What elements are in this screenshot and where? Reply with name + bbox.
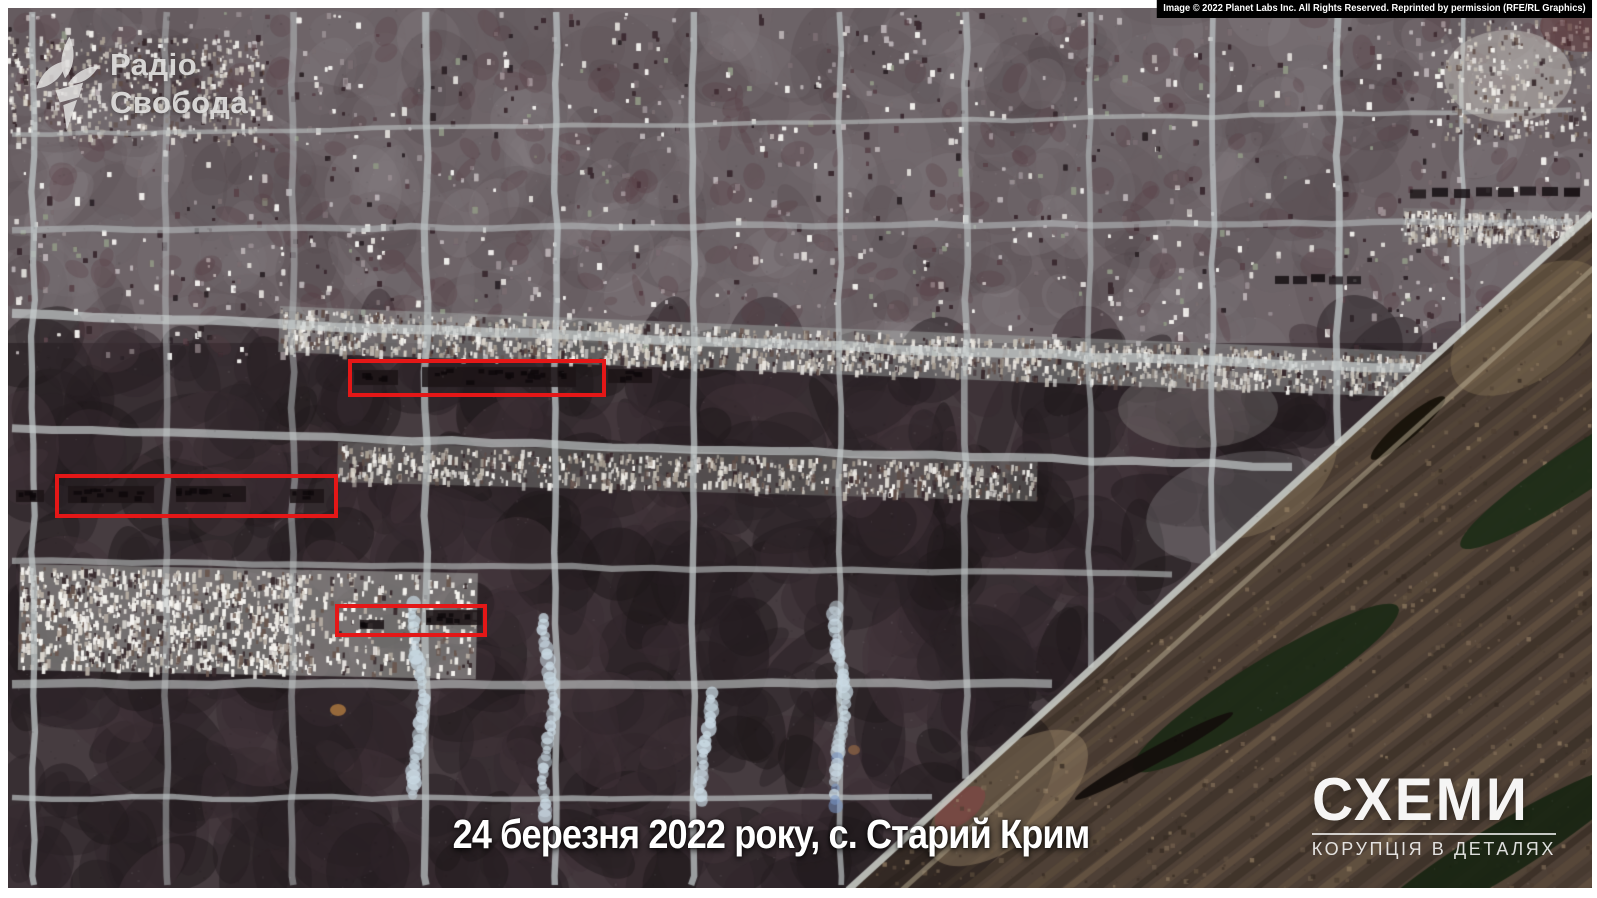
schemes-tagline: КОРУПЦІЯ В ДЕТАЛЯХ xyxy=(1312,839,1556,860)
rferl-logo-text: Радіо Свобода xyxy=(110,46,248,122)
annotation-box-3 xyxy=(335,604,487,637)
rferl-logo: Радіо Свобода xyxy=(26,30,248,136)
image-caption: 24 березня 2022 року, с. Старий Крим xyxy=(453,811,1090,858)
rferl-logo-line1: Радіо xyxy=(110,46,248,84)
rferl-torch-icon xyxy=(26,30,104,136)
schemes-watermark: СХЕМИ КОРУПЦІЯ В ДЕТАЛЯХ xyxy=(1312,771,1556,860)
annotation-box-1 xyxy=(348,359,606,397)
satellite-image-frame: Радіо Свобода 24 березня 2022 року, с. С… xyxy=(8,8,1592,888)
rferl-logo-line2: Свобода xyxy=(110,84,248,122)
annotation-box-2 xyxy=(55,474,338,518)
copyright-bar: Image © 2022 Planet Labs Inc. All Rights… xyxy=(1157,0,1592,18)
schemes-divider xyxy=(1312,833,1556,835)
graphic-page: Радіо Свобода 24 березня 2022 року, с. С… xyxy=(0,0,1597,898)
annotation-layer xyxy=(8,8,1592,888)
schemes-wordmark: СХЕМИ xyxy=(1312,771,1544,828)
